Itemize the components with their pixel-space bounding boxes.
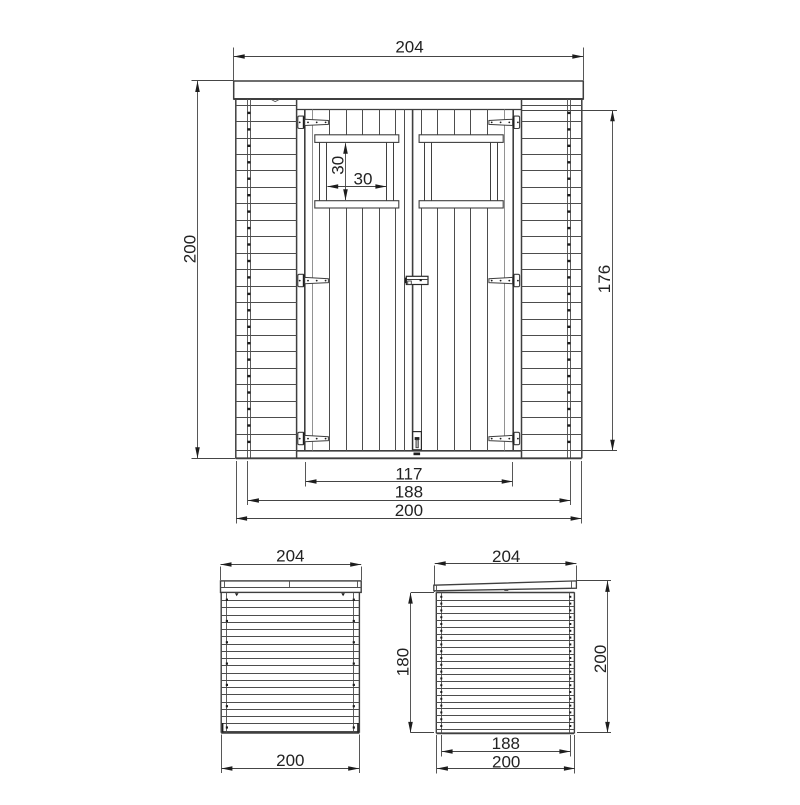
svg-text:204: 204 bbox=[492, 547, 520, 566]
svg-text:180: 180 bbox=[394, 648, 413, 676]
svg-text:176: 176 bbox=[595, 265, 614, 293]
svg-text:200: 200 bbox=[180, 235, 199, 263]
svg-text:200: 200 bbox=[395, 501, 423, 520]
svg-text:204: 204 bbox=[395, 38, 423, 57]
svg-text:204: 204 bbox=[276, 546, 304, 565]
svg-text:30: 30 bbox=[354, 170, 373, 189]
svg-text:188: 188 bbox=[395, 482, 423, 501]
svg-text:200: 200 bbox=[492, 752, 520, 771]
svg-text:30: 30 bbox=[328, 156, 347, 175]
svg-text:117: 117 bbox=[395, 465, 422, 484]
svg-text:200: 200 bbox=[276, 751, 304, 770]
svg-text:188: 188 bbox=[492, 734, 520, 753]
svg-text:200: 200 bbox=[591, 645, 610, 673]
